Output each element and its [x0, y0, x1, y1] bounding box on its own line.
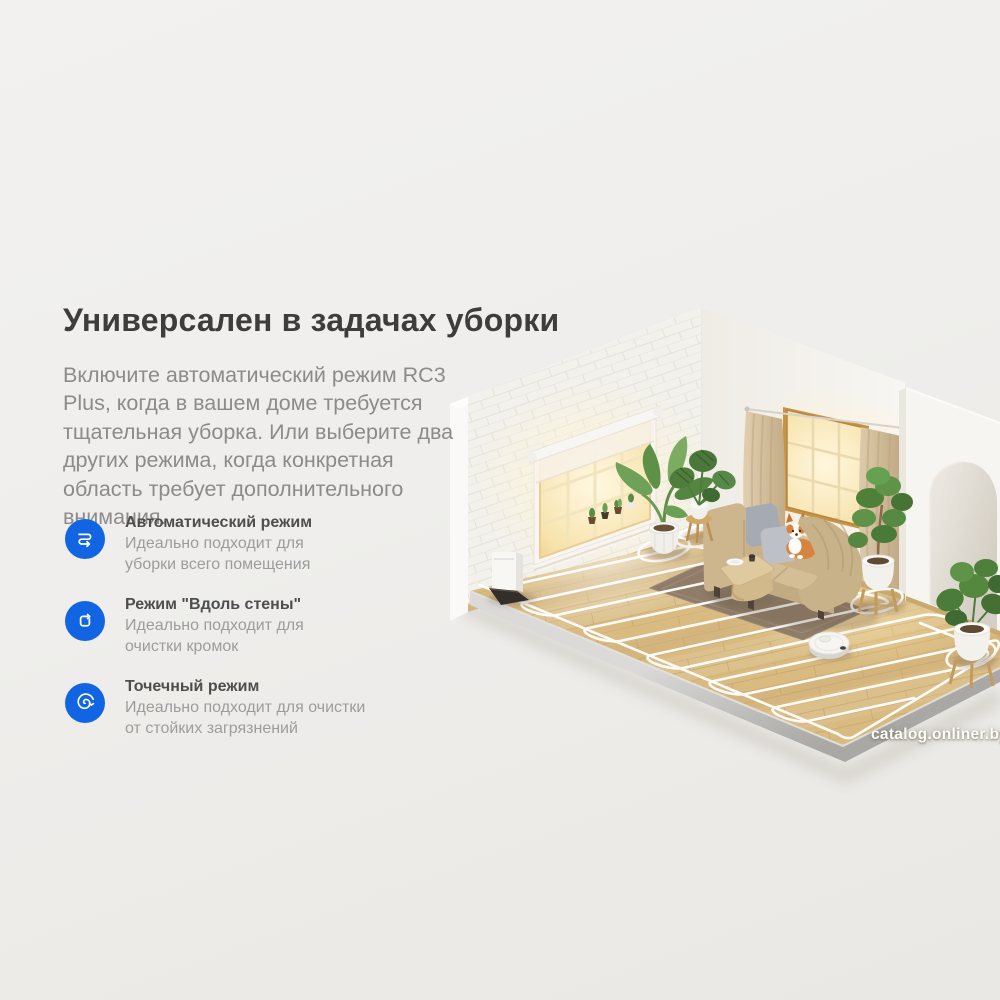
feature-wall-mode: Режим "Вдоль стены" Идеально подходит дл… — [65, 594, 375, 657]
cup — [749, 554, 755, 561]
feature-list: Автоматический режим Идеально подходит д… — [65, 512, 375, 758]
banner-description: Включите автоматический режим RC3 Plus, … — [63, 361, 467, 532]
watermark: catalog.onliner.by — [871, 726, 1000, 744]
spot-spiral-icon — [65, 683, 105, 723]
robot-vacuum — [809, 632, 849, 659]
promo-banner: Универсален в задачах уборки Включите ав… — [0, 0, 1000, 1000]
feature-title: Автоматический режим — [125, 512, 321, 533]
serpentine-route-icon — [65, 519, 105, 559]
wall-follow-icon — [65, 601, 105, 641]
feature-spot-mode: Точечный режим Идеально подходит для очи… — [65, 676, 375, 739]
feature-auto-mode: Автоматический режим Идеально подходит д… — [65, 512, 375, 575]
feature-description: Идеально подходит для уборки всего помещ… — [125, 533, 321, 575]
page-title: Универсален в задачах уборки — [63, 302, 623, 339]
feature-title: Точечный режим — [125, 676, 375, 697]
feature-description: Идеально подходит для очистки от стойких… — [125, 697, 375, 739]
feature-description: Идеально подходит для очистки кромок — [125, 615, 321, 657]
feature-title: Режим "Вдоль стены" — [125, 594, 321, 615]
